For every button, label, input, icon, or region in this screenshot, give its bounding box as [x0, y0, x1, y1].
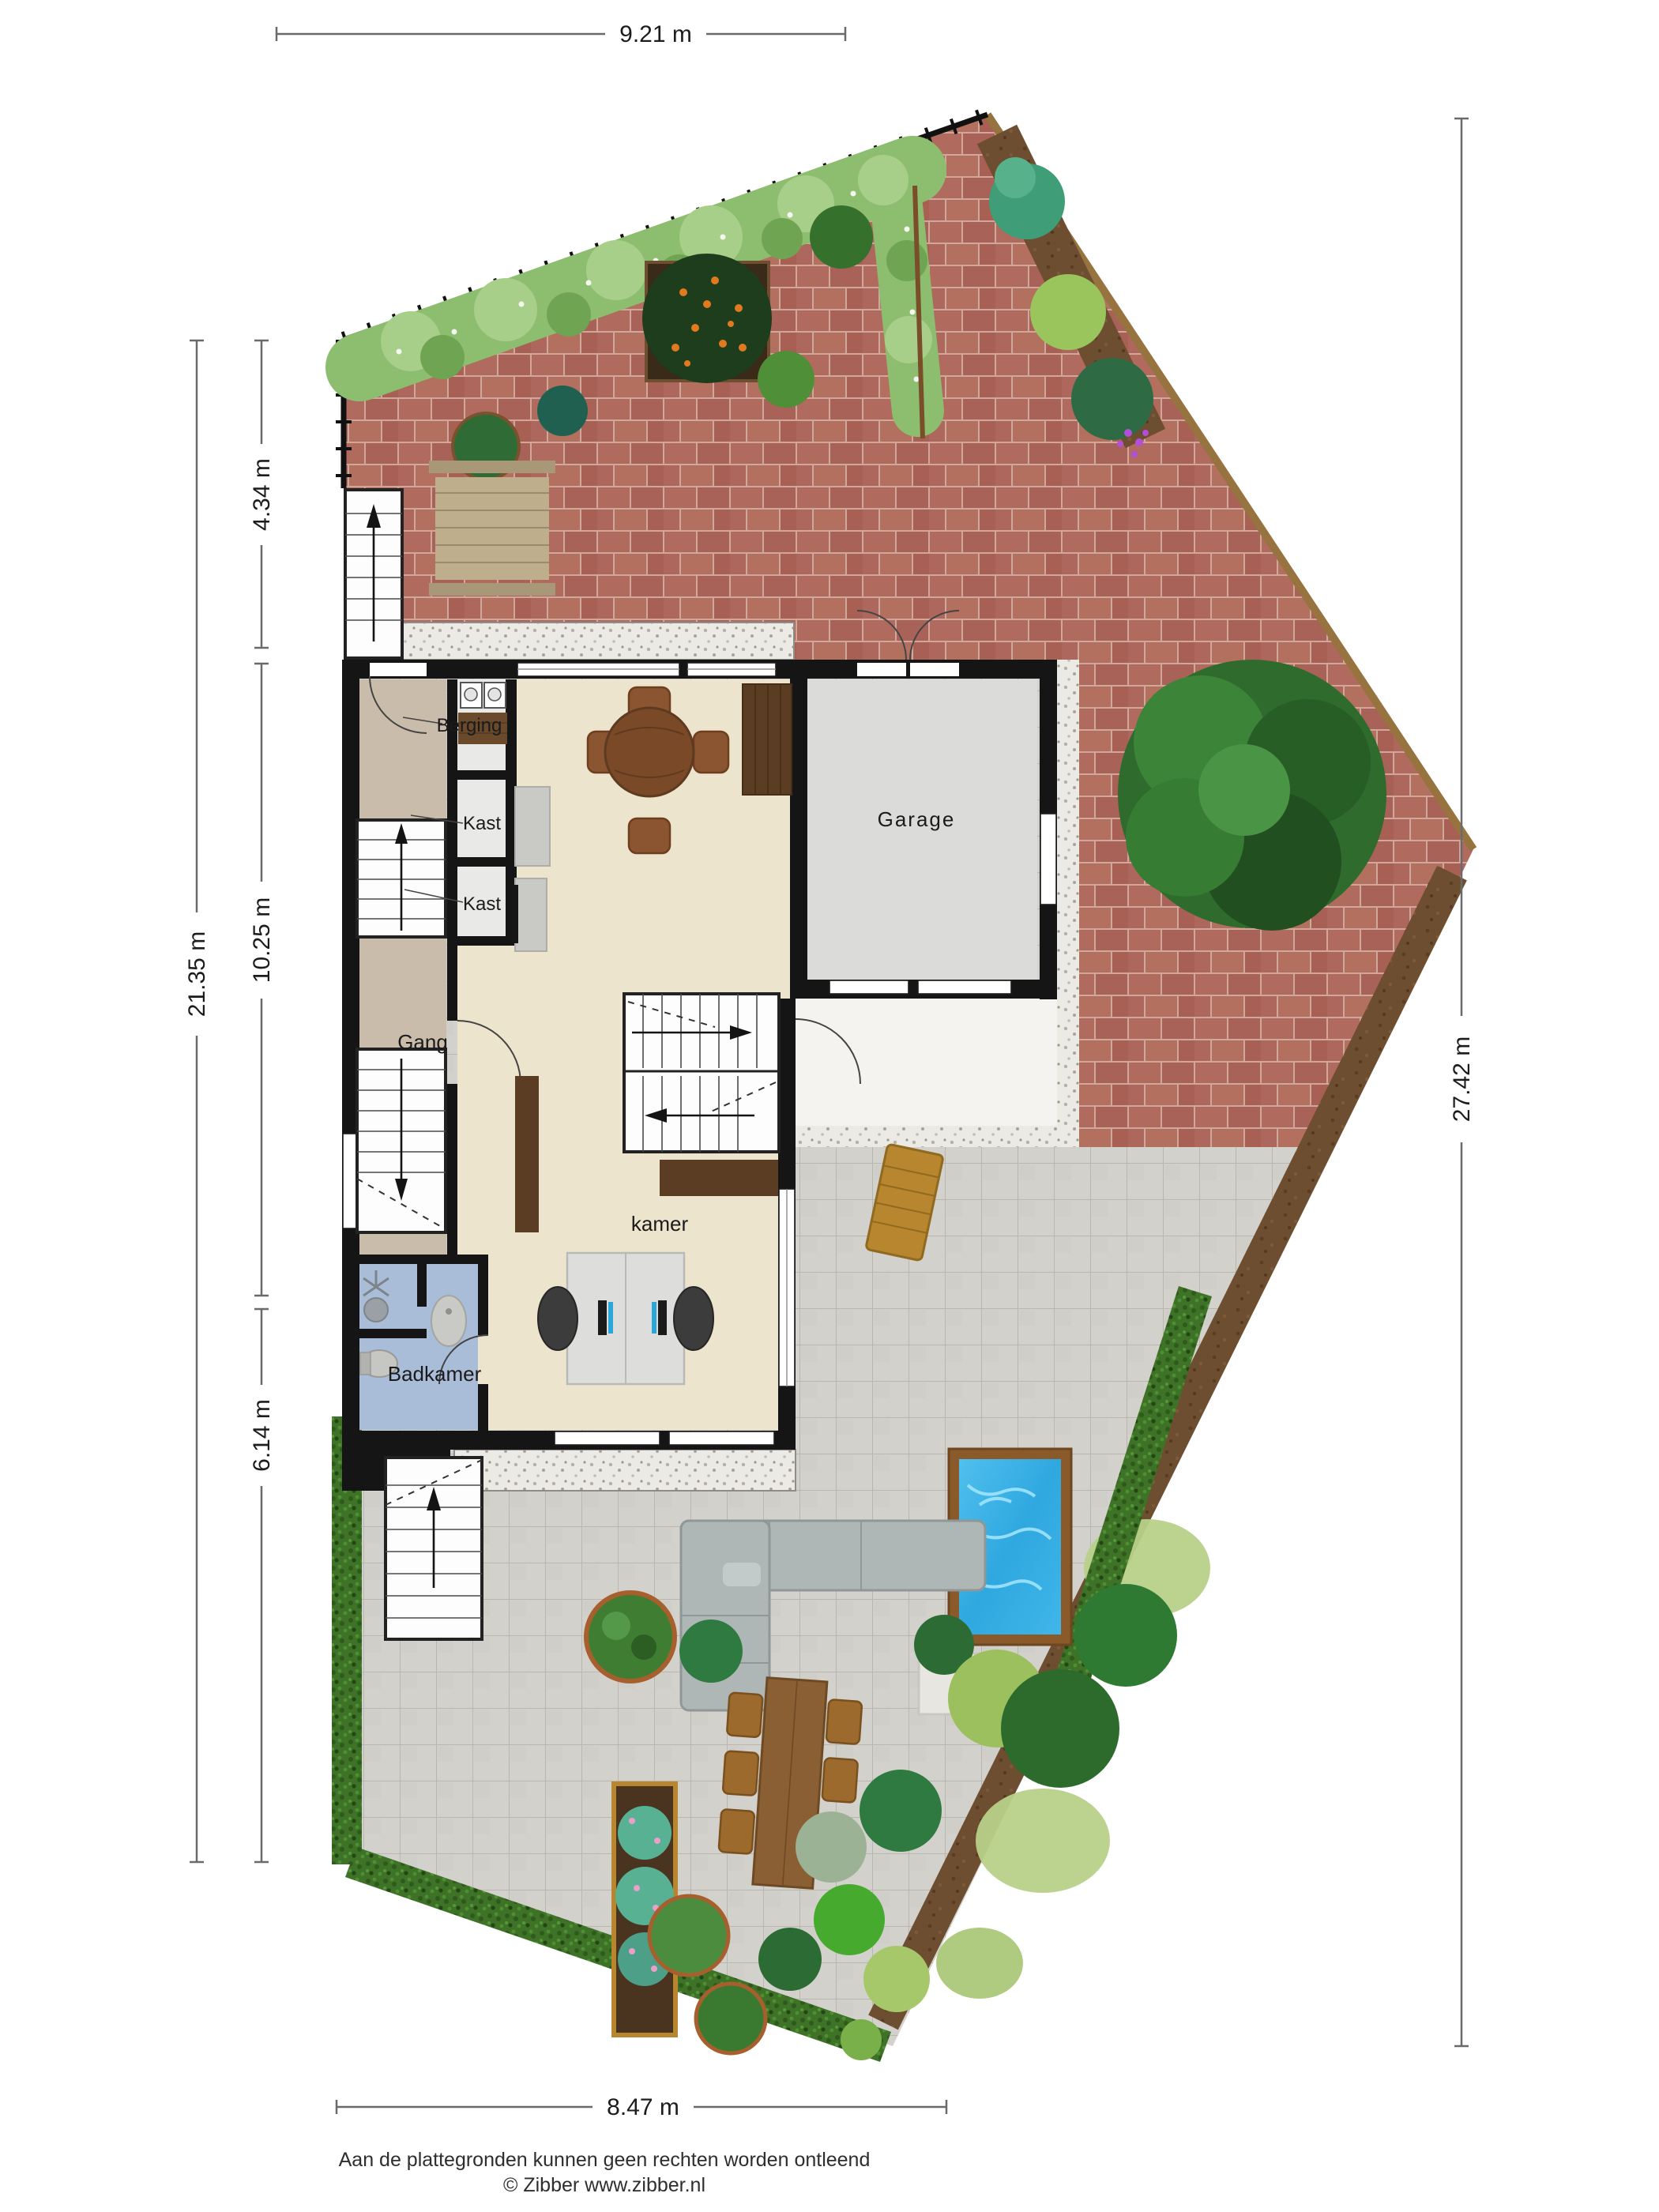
footer-credit: © Zibber www.zibber.nl [503, 2174, 705, 2196]
office-chair [674, 1287, 713, 1350]
sideboard-kamer [515, 1076, 539, 1232]
floorplan-page: Berging Kast Kast Gang Garage kamer Badk… [0, 0, 1659, 2212]
dimension-bottom: 8.47 m [337, 2092, 946, 2122]
dimension-left-middle: 10.25 m [246, 664, 276, 1296]
monitor [608, 1302, 613, 1334]
potted-plant [586, 1593, 675, 1681]
dimension-left-total: 21.35 m [182, 340, 212, 1862]
dimension-right-label: 27.42 m [1449, 1036, 1475, 1122]
stair-outdoor-top [345, 490, 402, 658]
room-label-gang: Gang [397, 1030, 448, 1054]
dimension-left-bottom-label: 6.14 m [249, 1399, 275, 1472]
footer: Aan de plattegronden kunnen geen rechten… [339, 2149, 871, 2196]
stair-gang-down [357, 1049, 446, 1232]
dimension-left-top-label: 4.34 m [249, 458, 275, 531]
monitor [652, 1302, 656, 1334]
room-label-berging: Berging [437, 715, 502, 736]
bathtub [431, 1296, 466, 1346]
stair-outdoor-bottom [386, 1458, 482, 1639]
dimension-left-bottom: 6.14 m [246, 1309, 276, 1862]
room-label-badkamer: Badkamer [388, 1362, 482, 1386]
cabinet-tall [743, 684, 792, 795]
console-under-stairs [660, 1160, 778, 1196]
dimension-left-middle-label: 10.25 m [249, 897, 275, 983]
dimension-top: 9.21 m [276, 19, 845, 49]
shower-drain [364, 1298, 388, 1322]
porch [796, 999, 1057, 1126]
stair-kamer [624, 994, 779, 1152]
dimension-right: 27.42 m [1446, 118, 1477, 2046]
office-chair [538, 1287, 577, 1350]
fern [537, 386, 588, 436]
floorplan-svg: Berging Kast Kast Gang Garage kamer Badk… [0, 0, 1659, 2212]
dimension-top-label: 9.21 m [619, 21, 692, 47]
room-label-kast-1: Kast [463, 813, 501, 834]
tv [511, 885, 518, 943]
room-label-kamer: kamer [631, 1212, 689, 1236]
footer-disclaimer: Aan de plattegronden kunnen geen rechten… [339, 2149, 871, 2171]
palm [758, 351, 814, 408]
room-label-garage: Garage [878, 807, 956, 831]
bush [810, 205, 873, 269]
room-label-kast-2: Kast [463, 893, 501, 915]
fruit-bush [642, 254, 772, 383]
dimension-left-total-label: 21.35 m [184, 931, 210, 1017]
dimension-bottom-label: 8.47 m [607, 2094, 679, 2120]
dimension-left-top: 4.34 m [246, 340, 276, 648]
stair-gang-up [357, 820, 446, 937]
picnic-table [429, 461, 555, 596]
